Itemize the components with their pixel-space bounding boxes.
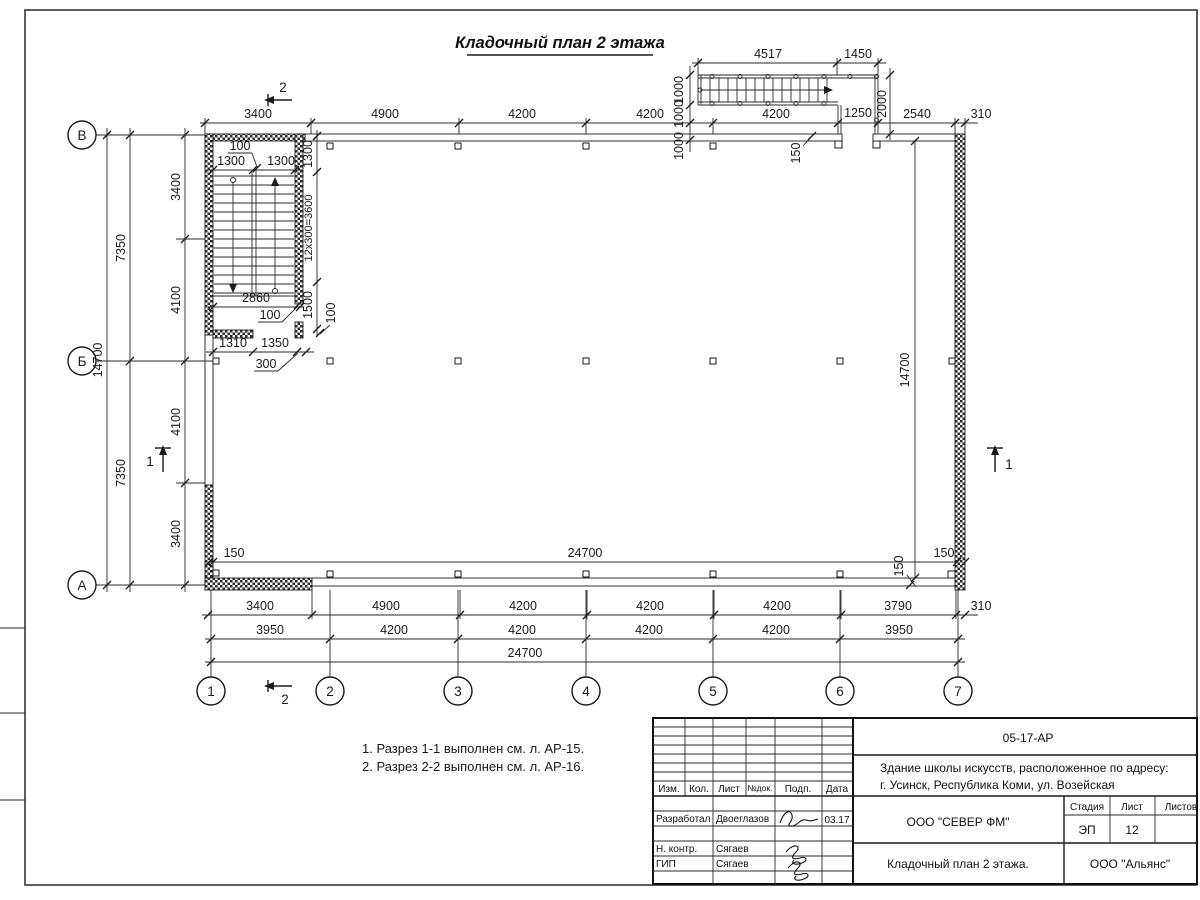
bottom-wall xyxy=(312,578,955,586)
section-marks: 1 1 2 2 xyxy=(146,80,1013,707)
dim-label: 1300 xyxy=(217,154,245,168)
dim-label: 2540 xyxy=(903,107,931,121)
section-label: 2 xyxy=(281,692,289,707)
masonry-plan-drawing: Кладочный план 2 этажа xyxy=(0,0,1200,900)
external-stair xyxy=(698,75,879,135)
dim-label: 1300 xyxy=(267,154,295,168)
dim-label: 7350 xyxy=(114,234,128,262)
dim-label: 4200 xyxy=(508,107,536,121)
project-address-line1: Здание школы искусств, расположенное по … xyxy=(880,761,1169,775)
section-label: 1 xyxy=(146,454,154,469)
dim-label: 1000 xyxy=(672,76,686,104)
axis-label: 6 xyxy=(836,684,844,699)
dim-label: 300 xyxy=(256,357,277,371)
dim-label: 3950 xyxy=(256,623,284,637)
col-header-kol: Кол. xyxy=(689,784,709,795)
drawing-title: Кладочный план 2 этажа xyxy=(455,34,665,55)
dim-label: 2860 xyxy=(242,291,270,305)
section-label: 2 xyxy=(279,80,287,95)
dim-label: 3400 xyxy=(169,173,183,201)
col-header-podp: Подп. xyxy=(785,784,812,795)
bottom-wall-left xyxy=(205,578,312,590)
dim-label: 1500 xyxy=(301,291,315,319)
dim-label: 4200 xyxy=(380,623,408,637)
dim-label: 3790 xyxy=(884,599,912,613)
page-title: Кладочный план 2 этажа xyxy=(455,34,665,52)
axis-label: 7 xyxy=(954,684,962,699)
dim-label: 4200 xyxy=(508,623,536,637)
dim-label: 4100 xyxy=(169,286,183,314)
col-header-list: Лист xyxy=(718,784,740,795)
section-label: 1 xyxy=(1005,457,1013,472)
dim-label: 4900 xyxy=(371,107,399,121)
dim-label: 24700 xyxy=(508,646,543,660)
dim-label: 100 xyxy=(260,308,281,322)
dim-label: 7350 xyxy=(114,459,128,487)
row-name-ncontrol: Сягаев xyxy=(716,844,749,855)
axis-label: Б xyxy=(78,354,87,369)
row-role-developer: Разработал xyxy=(656,813,711,825)
dim-label: 2000 xyxy=(875,90,889,118)
dim-chains-left: 3400 4100 4100 3400 7350 7350 14700 xyxy=(91,128,213,592)
note-line-1: 1. Разрез 1-1 выполнен см. л. АР-15. xyxy=(362,741,584,756)
dim-label: 3400 xyxy=(246,599,274,613)
dim-label: 1300 xyxy=(301,140,315,168)
dim-label: 150 xyxy=(892,556,906,577)
dim-label: 4900 xyxy=(372,599,400,613)
dim-label: 4200 xyxy=(635,623,663,637)
dim-label: 150 xyxy=(934,546,955,560)
document-code: 05-17-АР xyxy=(1003,731,1054,745)
stage-header: Стадия xyxy=(1070,802,1104,813)
dim-label: 1450 xyxy=(844,47,872,61)
dim-label: 14700 xyxy=(91,343,105,378)
axis-label: 4 xyxy=(582,684,590,699)
dim-label: 3950 xyxy=(885,623,913,637)
dim-label: 4200 xyxy=(763,599,791,613)
dim-label: 3400 xyxy=(244,107,272,121)
dim-label: 310 xyxy=(971,599,992,613)
dim-chains-bottom: 3400 4900 4200 4200 4200 3790 310 3950 4… xyxy=(202,590,991,677)
axis-label: 1 xyxy=(207,684,215,699)
axis-label: 2 xyxy=(326,684,334,699)
drawing-sheet: Кладочный план 2 этажа xyxy=(0,0,1200,900)
dim-label: 12x300=3600 xyxy=(303,195,315,262)
col-header-izm: Изм. xyxy=(658,784,679,795)
dim-label: 14700 xyxy=(898,353,912,388)
col-header-ndok: №док. xyxy=(748,783,773,793)
row-role-gip: ГИП xyxy=(656,859,676,870)
dim-label: 1350 xyxy=(261,336,289,350)
dim-label: 4200 xyxy=(636,599,664,613)
dim-label: 1000 xyxy=(672,100,686,128)
dim-label: 4200 xyxy=(636,107,664,121)
row-role-ncontrol: Н. контр. xyxy=(656,844,697,855)
axis-label: 5 xyxy=(709,684,717,699)
left-wall-upper xyxy=(205,134,213,335)
title-block: Изм. Кол. Лист №док. Подп. Дата Разработ… xyxy=(653,718,1197,884)
stage-value: ЭП xyxy=(1078,823,1095,837)
note-line-2: 2. Разрез 2-2 выполнен см. л. АР-16. xyxy=(362,759,584,774)
internal-stair xyxy=(213,170,295,296)
dim-label: 4200 xyxy=(509,599,537,613)
dim-label: 1250 xyxy=(844,106,872,120)
dim-label: 100 xyxy=(324,303,338,324)
sheets-header: Листов xyxy=(1165,802,1198,813)
dim-label: 4200 xyxy=(762,107,790,121)
stair-top-wall xyxy=(205,134,305,141)
sheet-header: Лист xyxy=(1121,802,1143,813)
dim-label: 1000 xyxy=(672,132,686,160)
customer-org: ООО "Альянс" xyxy=(1090,857,1170,871)
col-header-data: Дата xyxy=(826,784,849,795)
dim-label: 310 xyxy=(971,107,992,121)
dim-label: 4100 xyxy=(169,408,183,436)
sheet-number: 12 xyxy=(1125,823,1139,837)
signature-developer xyxy=(780,812,818,827)
right-wall xyxy=(955,134,965,590)
columns xyxy=(213,141,955,578)
left-wall-lower xyxy=(205,485,213,590)
row-name-developer: Двоеглазов xyxy=(716,814,769,825)
dim-label: 4517 xyxy=(754,47,782,61)
dim-label: 4200 xyxy=(762,623,790,637)
project-address-line2: г. Усинск, Республика Коми, ул. Возейска… xyxy=(880,778,1115,792)
axis-label: А xyxy=(77,578,86,593)
dim-label: 150 xyxy=(789,143,803,164)
notes: 1. Разрез 1-1 выполнен см. л. АР-15. 2. … xyxy=(362,741,584,774)
axis-label: В xyxy=(77,128,86,143)
row-date-developer: 03.17 xyxy=(824,815,849,826)
dim-label: 1310 xyxy=(219,336,247,350)
axis-markers-bottom: 1 2 3 4 5 6 7 xyxy=(197,677,972,705)
dim-chain-top: 3400 4900 4200 4200 4200 1250 2540 310 xyxy=(200,106,991,134)
axis-label: 3 xyxy=(454,684,462,699)
left-wall-middle xyxy=(205,335,213,485)
dim-label: 3400 xyxy=(169,520,183,548)
dim-label: 100 xyxy=(230,139,251,153)
sheet-title: Кладочный план 2 этажа. xyxy=(887,857,1029,871)
design-company: ООО "СЕВЕР ФМ" xyxy=(907,815,1010,829)
dim-label: 150 xyxy=(224,546,245,560)
row-name-gip: Сягаев xyxy=(716,859,749,870)
dim-label: 24700 xyxy=(568,546,603,560)
